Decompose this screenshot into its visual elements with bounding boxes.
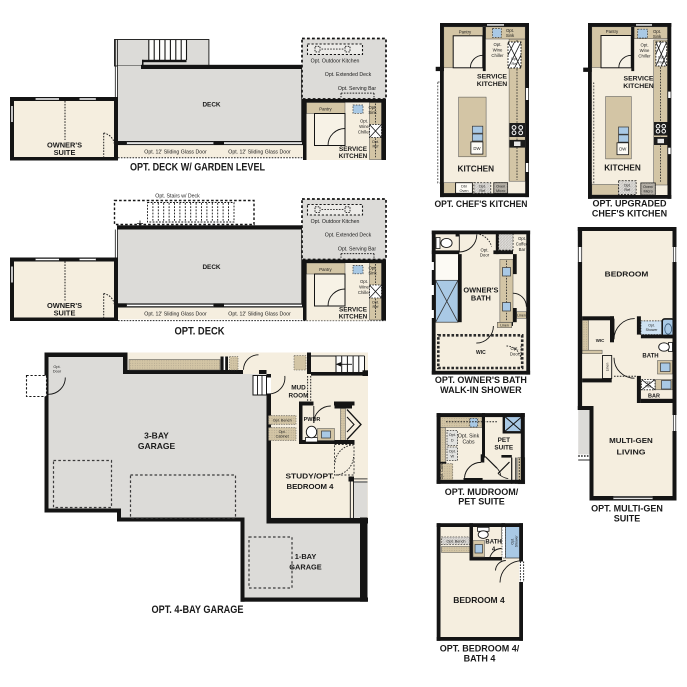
svg-text:Opt. 12' Sliding Glass Door: Opt. 12' Sliding Glass Door bbox=[228, 311, 291, 317]
svg-text:BATH: BATH bbox=[642, 354, 658, 360]
svg-text:Ref: Ref bbox=[512, 62, 519, 66]
svg-text:KITCHEN: KITCHEN bbox=[604, 163, 641, 173]
svg-text:KITCHEN: KITCHEN bbox=[458, 164, 495, 174]
svg-text:Opt.: Opt. bbox=[648, 323, 655, 327]
svg-text:Opt. Bench: Opt. Bench bbox=[447, 540, 466, 544]
svg-text:PWDR: PWDR bbox=[304, 417, 321, 423]
svg-text:PET SUITE: PET SUITE bbox=[458, 497, 505, 507]
svg-text:DW: DW bbox=[619, 147, 627, 152]
svg-text:OPT. MULTI-GEN: OPT. MULTI-GEN bbox=[591, 504, 663, 514]
svg-text:Dbl: Dbl bbox=[461, 184, 467, 188]
svg-text:Opt. 12' Sliding Glass Door: Opt. 12' Sliding Glass Door bbox=[228, 149, 291, 155]
svg-text:Micro: Micro bbox=[643, 190, 652, 194]
svg-text:SUITE: SUITE bbox=[494, 445, 514, 452]
svg-text:OPT. BEDROOM 4/: OPT. BEDROOM 4/ bbox=[440, 643, 520, 653]
svg-text:Opt.: Opt. bbox=[493, 42, 501, 47]
svg-text:OPT. MUDROOM/: OPT. MUDROOM/ bbox=[445, 487, 519, 497]
svg-text:Pantry: Pantry bbox=[459, 30, 472, 35]
svg-text:MUD: MUD bbox=[291, 384, 306, 391]
svg-text:BEDROOM 4: BEDROOM 4 bbox=[287, 482, 335, 491]
svg-text:Door: Door bbox=[480, 253, 490, 258]
svg-text:BATH: BATH bbox=[485, 540, 501, 546]
svg-text:Linen: Linen bbox=[517, 314, 526, 318]
svg-text:Sink: Sink bbox=[506, 33, 515, 38]
svg-text:GARAGE: GARAGE bbox=[289, 562, 322, 571]
svg-text:Ref: Ref bbox=[624, 188, 631, 192]
svg-text:LIVING: LIVING bbox=[617, 448, 646, 457]
svg-text:DECK: DECK bbox=[202, 264, 220, 271]
svg-text:Ref: Ref bbox=[646, 384, 651, 388]
svg-text:DW: DW bbox=[473, 146, 481, 151]
svg-text:SERVICE: SERVICE bbox=[624, 76, 655, 83]
svg-text:BEDROOM 4: BEDROOM 4 bbox=[453, 595, 505, 605]
svg-text:Chiller: Chiller bbox=[638, 54, 651, 59]
svg-text:1-BAY: 1-BAY bbox=[295, 552, 317, 561]
svg-text:ROOM: ROOM bbox=[289, 392, 309, 399]
svg-text:PET: PET bbox=[498, 437, 511, 444]
svg-text:Oven: Oven bbox=[496, 184, 505, 188]
svg-text:OPT. CHEF'S KITCHEN: OPT. CHEF'S KITCHEN bbox=[435, 199, 528, 209]
svg-text:Shower: Shower bbox=[515, 535, 519, 548]
svg-text:Linen: Linen bbox=[500, 324, 509, 328]
svg-text:Opt.: Opt. bbox=[53, 365, 60, 369]
svg-text:Opt.: Opt. bbox=[624, 183, 631, 187]
svg-text:Opt.: Opt. bbox=[279, 430, 286, 434]
svg-text:Wine: Wine bbox=[640, 48, 650, 53]
svg-text:OPT. DECK W/ GARDEN LEVEL: OPT. DECK W/ GARDEN LEVEL bbox=[130, 162, 265, 174]
svg-text:Cabs: Cabs bbox=[462, 439, 475, 445]
svg-text:Cabinet: Cabinet bbox=[276, 435, 290, 439]
svg-text:Opt.: Opt. bbox=[640, 43, 648, 48]
svg-text:Micro: Micro bbox=[496, 189, 505, 193]
svg-text:SERVICE: SERVICE bbox=[477, 74, 508, 81]
svg-text:Sink: Sink bbox=[653, 34, 662, 39]
svg-text:Opt.: Opt. bbox=[449, 433, 456, 437]
svg-text:OPT. 4-BAY GARAGE: OPT. 4-BAY GARAGE bbox=[152, 604, 244, 616]
svg-text:Door: Door bbox=[510, 351, 520, 356]
svg-text:Bar: Bar bbox=[519, 247, 526, 252]
svg-text:SUITE: SUITE bbox=[614, 514, 641, 524]
svg-text:OPT. UPGRADED: OPT. UPGRADED bbox=[592, 199, 667, 209]
svg-text:Ref: Ref bbox=[479, 189, 486, 193]
svg-text:Opt. Bench: Opt. Bench bbox=[273, 419, 292, 423]
svg-text:Oven: Oven bbox=[459, 189, 468, 193]
svg-text:Shower: Shower bbox=[646, 328, 659, 332]
svg-text:Opt.: Opt. bbox=[658, 56, 665, 60]
svg-text:Pantry: Pantry bbox=[606, 29, 619, 34]
svg-text:W: W bbox=[451, 455, 455, 459]
svg-text:Linen: Linen bbox=[606, 363, 610, 372]
svg-text:BATH 4: BATH 4 bbox=[464, 653, 496, 663]
svg-text:Ref: Ref bbox=[658, 60, 665, 64]
svg-text:Opt. 12' Sliding Glass Door: Opt. 12' Sliding Glass Door bbox=[144, 311, 207, 317]
svg-text:Opt. 12' Sliding Glass Door: Opt. 12' Sliding Glass Door bbox=[144, 149, 207, 155]
svg-text:Opt.: Opt. bbox=[479, 184, 486, 188]
svg-text:WIC: WIC bbox=[476, 350, 486, 356]
svg-text:Opt.: Opt. bbox=[518, 236, 526, 241]
svg-text:CHEF'S KITCHEN: CHEF'S KITCHEN bbox=[592, 209, 667, 219]
svg-text:Door: Door bbox=[53, 370, 62, 374]
svg-text:Opt. Stairs w/ Deck: Opt. Stairs w/ Deck bbox=[155, 193, 200, 199]
svg-text:KITCHEN: KITCHEN bbox=[623, 83, 654, 90]
svg-text:D: D bbox=[451, 439, 454, 443]
svg-text:BEDROOM: BEDROOM bbox=[605, 270, 649, 279]
svg-text:STUDY/OPT.: STUDY/OPT. bbox=[286, 472, 335, 481]
svg-text:Chiller: Chiller bbox=[491, 53, 504, 58]
svg-text:Wine: Wine bbox=[493, 48, 503, 53]
svg-text:BAR: BAR bbox=[648, 394, 660, 400]
svg-text:GARAGE: GARAGE bbox=[138, 441, 176, 451]
svg-text:Oven/: Oven/ bbox=[643, 185, 654, 189]
svg-text:WIC: WIC bbox=[596, 338, 605, 343]
svg-text:WALK-IN SHOWER: WALK-IN SHOWER bbox=[440, 385, 522, 395]
svg-text:Opt.: Opt. bbox=[449, 449, 456, 453]
svg-text:Opt.: Opt. bbox=[511, 57, 518, 61]
svg-text:OPT. OWNER'S BATH: OPT. OWNER'S BATH bbox=[435, 375, 527, 385]
svg-text:OPT. DECK: OPT. DECK bbox=[175, 325, 225, 337]
svg-text:DECK: DECK bbox=[202, 102, 220, 109]
svg-text:MULTI-GEN: MULTI-GEN bbox=[609, 436, 653, 445]
svg-text:BATH: BATH bbox=[471, 294, 491, 303]
svg-text:KITCHEN: KITCHEN bbox=[477, 81, 508, 88]
svg-text:3-BAY: 3-BAY bbox=[144, 430, 169, 440]
